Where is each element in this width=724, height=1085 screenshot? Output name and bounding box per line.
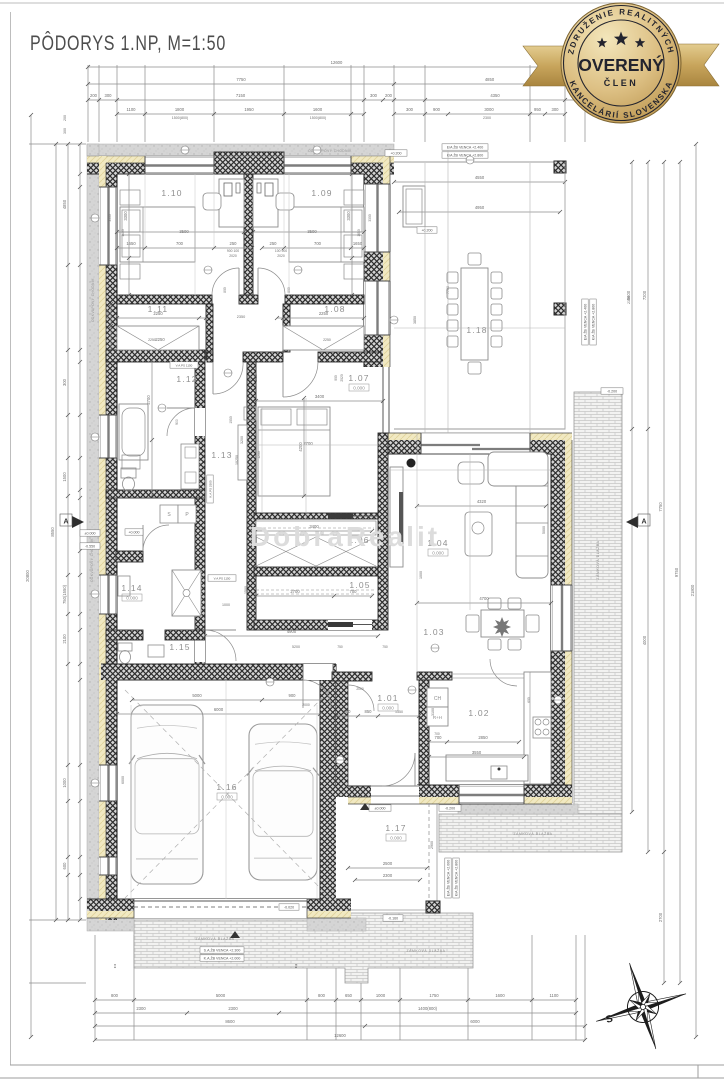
svg-text:850: 850 [365,709,373,714]
svg-text:2100: 2100 [62,634,67,644]
svg-text:900: 900 [433,107,441,112]
svg-text:5200: 5200 [292,645,300,649]
svg-text:A: A [641,519,646,526]
svg-text:1.01: 1.01 [377,693,398,703]
svg-text:3200: 3200 [240,436,244,444]
svg-text:1500(800): 1500(800) [310,116,326,120]
svg-text:100 900: 100 900 [275,249,287,253]
svg-text:2900: 2900 [430,841,434,849]
svg-text:3300: 3300 [368,214,372,222]
svg-text:4200: 4200 [298,442,303,452]
svg-text:CH: CH [434,696,442,702]
svg-text:900: 900 [334,375,338,381]
svg-text:1200: 1200 [257,451,261,459]
svg-text:800: 800 [318,993,326,998]
svg-text:1350: 1350 [395,710,403,714]
svg-text:+0.200: +0.200 [390,152,401,156]
svg-text:800: 800 [248,375,252,381]
svg-text:1000: 1000 [222,603,230,607]
svg-text:2250: 2250 [155,337,165,342]
svg-text:3300: 3300 [108,214,112,222]
svg-text:250: 250 [270,241,278,246]
svg-text:1750: 1750 [429,993,439,998]
svg-text:±0.000: ±0.000 [375,807,386,811]
svg-text:2020: 2020 [254,374,258,382]
svg-text:ČLEN: ČLEN [604,77,639,88]
svg-text:3500: 3500 [179,229,189,234]
svg-text:700: 700 [350,589,358,594]
svg-text:↕: ↕ [113,963,117,970]
svg-text:+0.200: +0.200 [421,229,432,233]
svg-text:1.10: 1.10 [161,188,182,198]
svg-text:1800: 1800 [175,107,185,112]
svg-text:1.07: 1.07 [348,373,369,383]
svg-text:E/A ŽB VENCA +2.000: E/A ŽB VENCA +2.000 [446,860,451,896]
svg-text:0.000: 0.000 [382,705,394,710]
svg-text:7750: 7750 [658,502,663,512]
svg-text:3550: 3550 [472,750,482,755]
svg-text:PÔDORYS 1.NP, M=1:50: PÔDORYS 1.NP, M=1:50 [30,30,226,55]
svg-text:2700: 2700 [658,912,663,922]
svg-text:0.000: 0.000 [221,794,233,799]
svg-text:2020: 2020 [277,254,285,258]
svg-text:ZÁMKOVÁ DLAŽBA: ZÁMKOVÁ DLAŽBA [595,540,600,579]
svg-text:2000: 2000 [302,703,310,707]
svg-text:2000: 2000 [356,687,364,691]
svg-text:650: 650 [345,993,353,998]
svg-text:6000: 6000 [214,707,224,712]
svg-text:5000: 5000 [216,993,226,998]
svg-text:ZÁMKOVÁ DLAŽBA: ZÁMKOVÁ DLAŽBA [195,936,234,941]
svg-text:1650: 1650 [121,229,125,237]
svg-text:1.12: 1.12 [176,374,197,384]
svg-text:4320: 4320 [477,499,487,504]
svg-text:300: 300 [370,93,378,98]
svg-text:-0.200: -0.200 [445,807,455,811]
svg-text:1.16: 1.16 [216,782,237,792]
svg-text:300: 300 [552,107,560,112]
svg-text:2700: 2700 [290,589,300,594]
svg-text:1.13: 1.13 [211,450,232,460]
svg-text:900 100: 900 100 [227,249,239,253]
svg-text:4850: 4850 [485,77,495,82]
svg-text:S.A.ŽB VENCA +2.300: S.A.ŽB VENCA +2.300 [204,948,241,953]
svg-text:7200: 7200 [642,290,647,300]
svg-text:5000: 5000 [542,526,546,534]
svg-text:1.18: 1.18 [466,325,487,335]
svg-text:K.A.ŽB VENCA +2.000: K.A.ŽB VENCA +2.000 [204,956,241,961]
svg-text:1.14: 1.14 [121,583,142,593]
svg-text:K.A.PS 2500: K.A.PS 2500 [209,480,213,498]
svg-text:2500: 2500 [383,861,393,866]
svg-text:300: 300 [62,378,67,386]
svg-text:1.02: 1.02 [468,708,489,718]
svg-text:4850: 4850 [62,199,67,209]
svg-text:-0.550: -0.550 [85,545,95,549]
svg-text:2250: 2250 [148,338,156,342]
svg-text:600: 600 [527,697,531,703]
svg-text:2300: 2300 [483,116,491,120]
svg-text:1400: 1400 [105,310,110,320]
svg-text:A: A [63,519,68,526]
svg-text:250: 250 [230,241,238,246]
svg-text:K/A ŽB VENCA +2.800: K/A ŽB VENCA +2.800 [447,153,483,158]
svg-text:750(1550): 750(1550) [62,584,67,604]
svg-text:0.000: 0.000 [126,595,138,600]
svg-text:1.09: 1.09 [311,188,332,198]
svg-text:OVERENÝ: OVERENÝ [578,54,664,75]
svg-text:7150: 7150 [236,93,246,98]
svg-text:3500: 3500 [307,229,317,234]
svg-text:700: 700 [176,241,184,246]
svg-text:9750: 9750 [674,567,679,577]
svg-text:2300: 2300 [383,873,393,878]
svg-text:750: 750 [337,645,343,649]
svg-text:2250: 2250 [319,311,329,316]
svg-text:0.000: 0.000 [353,385,365,390]
svg-text:8550: 8550 [50,527,55,537]
svg-text:1100: 1100 [549,993,559,998]
svg-text:4700: 4700 [479,596,489,601]
svg-text:1600: 1600 [495,993,505,998]
svg-text:3100: 3100 [431,708,435,716]
svg-text:1500(800): 1500(800) [172,116,188,120]
svg-text:1500: 1500 [62,472,67,482]
svg-text:2020: 2020 [340,374,344,382]
svg-text:7750: 7750 [236,77,246,82]
svg-text:1.03: 1.03 [423,627,444,637]
svg-text:2700: 2700 [146,395,151,405]
svg-text:1600: 1600 [313,107,323,112]
svg-text:1400(800): 1400(800) [418,1006,438,1011]
svg-text:+0.000: +0.000 [128,531,139,535]
svg-text:4950: 4950 [475,205,485,210]
svg-text:300: 300 [63,128,67,134]
svg-text:2850: 2850 [478,735,488,740]
svg-text:900: 900 [344,709,352,714]
svg-text:8600: 8600 [225,1019,235,1024]
svg-text:1.17: 1.17 [385,823,406,833]
svg-text:1.15: 1.15 [169,642,190,652]
svg-text:3300: 3300 [123,211,128,221]
svg-text:300: 300 [406,107,414,112]
svg-text:6000: 6000 [121,776,125,784]
svg-text:4550: 4550 [475,175,485,180]
svg-text:3850: 3850 [413,316,417,324]
svg-text:700: 700 [434,732,440,736]
svg-text:1650: 1650 [126,241,136,246]
svg-text:10250: 10250 [235,455,239,465]
svg-text:200: 200 [90,93,98,98]
svg-text:12600: 12600 [334,1033,346,1038]
svg-text:K/A ŽB VENCA +2.800: K/A ŽB VENCA +2.800 [454,860,459,896]
svg-text:2250: 2250 [153,311,163,316]
svg-text:1000: 1000 [376,993,386,998]
svg-text:DobraRealit: DobraRealit [250,521,440,552]
svg-text:1050: 1050 [229,416,233,424]
svg-text:5000: 5000 [192,693,202,698]
svg-text:1950: 1950 [244,107,254,112]
svg-text:4900: 4900 [287,629,297,634]
svg-text:1000: 1000 [419,571,423,579]
svg-text:900: 900 [175,419,179,425]
svg-text:200: 200 [63,115,67,121]
svg-text:800: 800 [111,993,119,998]
svg-text:0.000: 0.000 [390,835,402,840]
svg-text:800: 800 [223,287,227,293]
svg-text:-0.200: -0.200 [607,390,617,394]
svg-text:2250: 2250 [323,338,331,342]
svg-text:21800: 21800 [690,584,695,596]
svg-text:1650: 1650 [353,241,363,246]
svg-text:2350: 2350 [237,315,245,319]
svg-text:12600: 12600 [331,60,343,65]
svg-text:V.A.PS 1150: V.A.PS 1150 [214,577,231,581]
svg-text:±0.000: ±0.000 [85,532,96,536]
svg-text:2300: 2300 [627,296,631,304]
svg-text:4000: 4000 [642,635,647,645]
svg-text:4350: 4350 [490,93,500,98]
svg-text:ZÁMKOVÁ DLAŽBA: ZÁMKOVÁ DLAŽBA [513,831,552,836]
svg-text:300: 300 [105,93,113,98]
svg-text:-0.020: -0.020 [284,906,294,910]
svg-text:20800: 20800 [25,570,30,582]
svg-text:2300: 2300 [136,1006,146,1011]
svg-text:750: 750 [382,645,388,649]
svg-text:ZÁMKOVÁ DLAŽBA: ZÁMKOVÁ DLAŽBA [406,948,445,953]
svg-text:950: 950 [534,107,542,112]
svg-text:700: 700 [314,241,322,246]
svg-text:3400: 3400 [315,394,325,399]
svg-text:ODKVAPOVÝ CHODNÍK: ODKVAPOVÝ CHODNÍK [91,278,95,322]
svg-text:1500: 1500 [244,586,248,594]
svg-text:E/A ŽB VENCA +2.400: E/A ŽB VENCA +2.400 [447,145,483,150]
svg-text:2020: 2020 [229,254,237,258]
svg-text:3000: 3000 [484,107,494,112]
svg-text:E/A ŽB VENCA +2.400: E/A ŽB VENCA +2.400 [583,304,588,340]
svg-text:6000: 6000 [470,1019,480,1024]
svg-text:3300: 3300 [346,211,351,221]
svg-text:900: 900 [289,693,297,698]
svg-text:600: 600 [62,862,67,870]
svg-text:↕: ↕ [294,963,298,970]
svg-text:1100: 1100 [126,107,136,112]
svg-text:2300: 2300 [228,1006,238,1011]
svg-text:1000: 1000 [62,778,67,788]
svg-text:1650: 1650 [357,229,361,237]
svg-text:V.A.PS 1150: V.A.PS 1150 [176,364,193,368]
svg-text:200: 200 [385,93,393,98]
svg-text:K/A ŽB VENCA +2.800: K/A ŽB VENCA +2.800 [591,304,596,340]
svg-text:-0.160: -0.160 [388,917,398,921]
